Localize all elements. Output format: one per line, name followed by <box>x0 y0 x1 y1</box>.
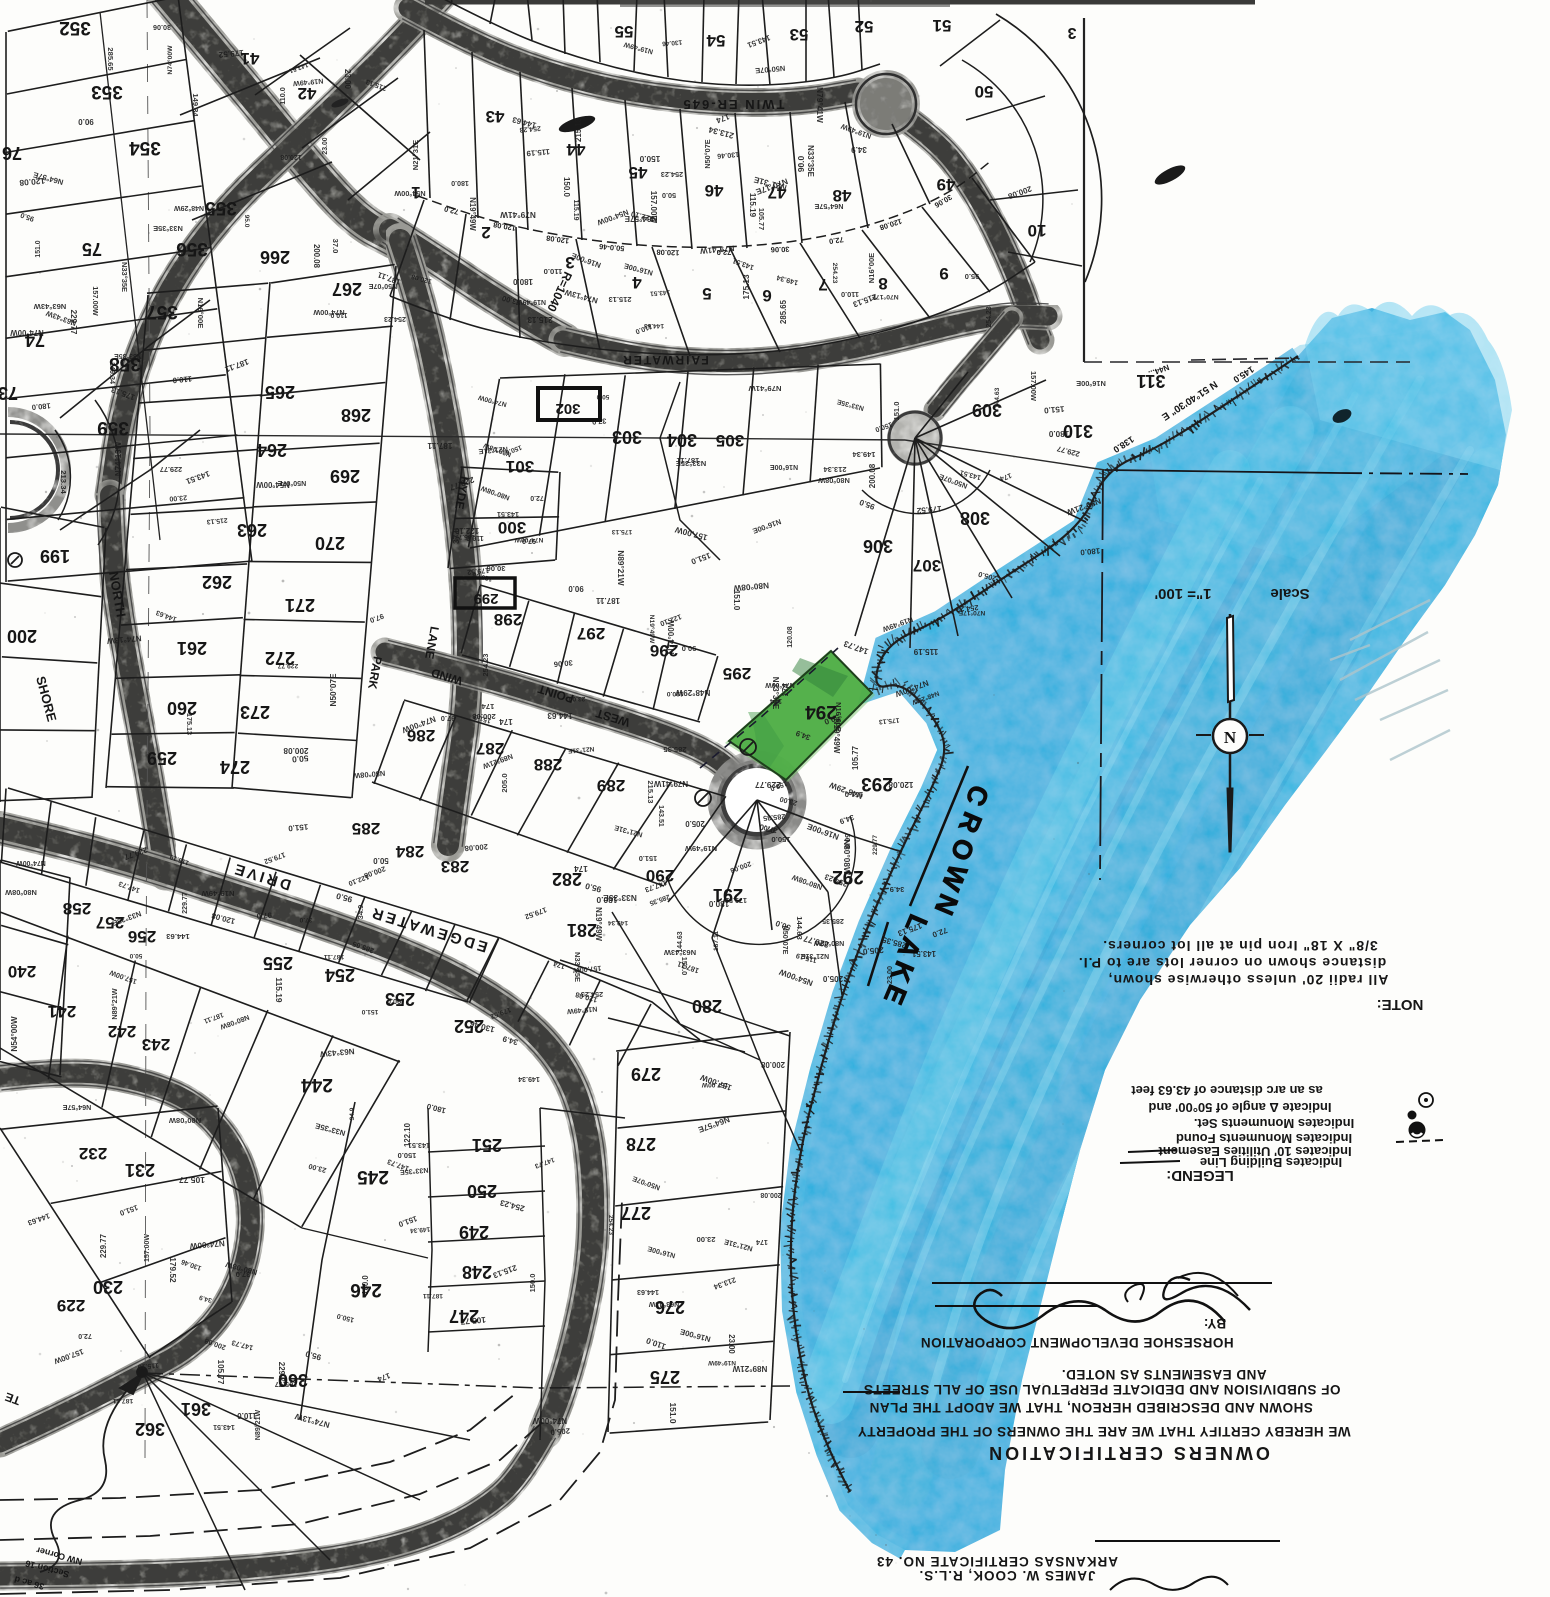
svg-text:N: N <box>1224 728 1237 747</box>
svg-text:N19°49W: N19°49W <box>684 844 717 853</box>
svg-text:53: 53 <box>790 25 809 44</box>
svg-text:362: 362 <box>135 1419 165 1439</box>
svg-text:1"= 100': 1"= 100' <box>1155 585 1212 602</box>
svg-text:149.34: 149.34 <box>608 919 629 926</box>
svg-text:306: 306 <box>863 536 893 556</box>
svg-text:157.00W: 157.00W <box>701 1081 728 1088</box>
svg-text:297: 297 <box>577 624 605 643</box>
svg-text:248: 248 <box>462 1262 492 1282</box>
svg-text:254.23: 254.23 <box>831 263 838 284</box>
svg-text:259: 259 <box>147 748 177 768</box>
svg-text:30.06: 30.06 <box>771 245 790 255</box>
svg-text:285.35: 285.35 <box>822 917 844 925</box>
svg-text:23.00: 23.00 <box>169 493 187 503</box>
svg-text:30.06: 30.06 <box>153 23 171 32</box>
svg-text:76: 76 <box>2 143 22 163</box>
svg-text:74: 74 <box>25 330 45 350</box>
svg-text:281: 281 <box>567 920 597 940</box>
svg-text:149.34: 149.34 <box>191 93 200 117</box>
svg-text:199: 199 <box>40 546 70 566</box>
svg-text:242: 242 <box>108 1022 136 1041</box>
svg-text:144.63: 144.63 <box>166 932 190 941</box>
svg-text:N54°00W: N54°00W <box>10 1016 19 1051</box>
svg-text:N54°00W: N54°00W <box>256 480 290 489</box>
svg-text:34.9: 34.9 <box>356 905 365 920</box>
svg-text:357: 357 <box>146 301 178 322</box>
svg-text:N16°00E: N16°00E <box>196 298 205 329</box>
svg-text:254.23: 254.23 <box>481 654 490 677</box>
svg-text:175.13: 175.13 <box>742 274 751 299</box>
svg-text:N74°00W: N74°00W <box>765 681 795 689</box>
svg-text:N64°57E: N64°57E <box>624 214 657 223</box>
svg-text:73: 73 <box>0 383 18 403</box>
svg-text:284: 284 <box>395 842 424 861</box>
svg-text:110.0: 110.0 <box>330 311 347 318</box>
svg-text:97.0: 97.0 <box>441 714 455 723</box>
svg-text:271: 271 <box>285 595 315 615</box>
svg-text:240: 240 <box>8 962 36 981</box>
svg-text:50.0: 50.0 <box>843 834 852 849</box>
svg-text:277: 277 <box>621 1203 651 1223</box>
svg-text:8: 8 <box>878 274 887 293</box>
svg-text:253: 253 <box>385 989 415 1009</box>
svg-text:360: 360 <box>278 1370 308 1390</box>
svg-text:72.0: 72.0 <box>530 494 544 501</box>
svg-text:361: 361 <box>181 1399 211 1419</box>
svg-text:299: 299 <box>473 590 498 607</box>
svg-text:200.08: 200.08 <box>868 463 877 488</box>
svg-text:213.34: 213.34 <box>823 465 847 474</box>
svg-text:N19°49W: N19°49W <box>468 197 477 231</box>
svg-text:266: 266 <box>260 247 290 267</box>
svg-text:247: 247 <box>449 1306 479 1326</box>
svg-text:10: 10 <box>1028 221 1047 240</box>
svg-text:269: 269 <box>330 466 360 486</box>
svg-text:229.77: 229.77 <box>99 1234 108 1258</box>
svg-text:OWNERS CERTIFICATION: OWNERS CERTIFICATION <box>986 1443 1270 1463</box>
svg-text:174: 174 <box>499 717 513 726</box>
svg-text:303: 303 <box>612 427 642 447</box>
svg-text:115.19: 115.19 <box>274 977 284 1002</box>
svg-text:180.0: 180.0 <box>512 277 533 286</box>
svg-text:252: 252 <box>454 1016 484 1036</box>
svg-text:296: 296 <box>650 641 678 660</box>
svg-text:Indicates Monuments Set.: Indicates Monuments Set. <box>1194 1116 1354 1131</box>
svg-text:288: 288 <box>534 755 562 774</box>
svg-text:150.0: 150.0 <box>562 177 571 198</box>
svg-text:30.06: 30.06 <box>553 658 573 669</box>
svg-text:174: 174 <box>756 1238 768 1246</box>
svg-text:N63°43W: N63°43W <box>33 302 66 311</box>
svg-text:90.0: 90.0 <box>796 156 806 173</box>
svg-text:295: 295 <box>723 664 751 683</box>
svg-text:215.13: 215.13 <box>609 295 632 304</box>
svg-text:151.0: 151.0 <box>35 240 42 257</box>
svg-text:110.0: 110.0 <box>466 534 484 543</box>
svg-text:AND EASEMENTS AS NOTED.: AND EASEMENTS AS NOTED. <box>1061 1367 1266 1382</box>
svg-text:205.0: 205.0 <box>500 773 509 792</box>
svg-text:180.0: 180.0 <box>1079 546 1100 557</box>
svg-text:N33°35E: N33°35E <box>120 262 129 292</box>
svg-text:310: 310 <box>1063 421 1093 441</box>
svg-text:OF SUBDIVISION AND DEDICATE PE: OF SUBDIVISION AND DEDICATE PERPETUAL US… <box>863 1382 1340 1397</box>
svg-text:N33°35E: N33°35E <box>603 893 637 903</box>
svg-text:All radii 20' unless otherwise: All radii 20' unless otherwise shown, <box>1108 972 1389 988</box>
svg-text:300: 300 <box>498 518 526 537</box>
svg-text:110.0: 110.0 <box>666 690 683 697</box>
svg-text:46: 46 <box>705 181 724 200</box>
svg-text:230: 230 <box>93 1277 123 1297</box>
svg-text:150.0: 150.0 <box>398 1151 417 1160</box>
svg-text:34.9: 34.9 <box>349 1107 356 1120</box>
svg-text:N74°13W: N74°13W <box>114 441 123 476</box>
svg-text:291: 291 <box>713 885 743 905</box>
svg-text:120.08: 120.08 <box>787 626 794 648</box>
svg-text:254.23: 254.23 <box>607 1215 614 1235</box>
svg-text:143.51: 143.51 <box>213 1423 235 1431</box>
svg-text:N50°07E: N50°07E <box>703 139 712 168</box>
svg-text:N63°43W: N63°43W <box>663 948 696 957</box>
svg-text:N64°57E: N64°57E <box>63 1103 92 1111</box>
svg-text:245: 245 <box>357 1166 389 1187</box>
svg-text:254: 254 <box>325 965 355 985</box>
svg-text:44: 44 <box>566 140 585 159</box>
svg-text:179.52: 179.52 <box>168 1257 178 1283</box>
svg-text:268: 268 <box>341 405 371 425</box>
svg-text:50: 50 <box>975 82 994 101</box>
svg-text:90.0: 90.0 <box>78 117 94 126</box>
svg-text:105.77: 105.77 <box>851 746 860 770</box>
svg-text:N33°35E: N33°35E <box>676 459 706 468</box>
svg-text:N21°31E: N21°31E <box>801 952 829 960</box>
svg-text:200: 200 <box>7 626 37 646</box>
svg-text:3/8" X 18" Iron pin at all lot: 3/8" X 18" Iron pin at all lot corners. <box>1102 938 1378 954</box>
svg-text:180.0: 180.0 <box>31 401 51 412</box>
svg-text:3: 3 <box>565 253 574 272</box>
svg-text:distance shown on corner lots: distance shown on corner lots are to P.I… <box>1078 955 1386 971</box>
svg-text:Indicate Δ angle of 50°00' and: Indicate Δ angle of 50°00' and <box>1148 1100 1331 1115</box>
svg-text:174: 174 <box>481 702 495 711</box>
svg-text:97.0: 97.0 <box>522 537 536 545</box>
svg-text:50.0: 50.0 <box>373 856 389 865</box>
svg-text:200.08: 200.08 <box>312 244 321 269</box>
svg-text:232: 232 <box>79 1144 107 1163</box>
svg-text:130.46: 130.46 <box>717 150 740 161</box>
svg-text:N89°21W: N89°21W <box>110 988 119 1019</box>
svg-text:N79°41W: N79°41W <box>653 779 688 788</box>
svg-text:264: 264 <box>257 440 287 460</box>
svg-text:LEGEND:: LEGEND: <box>1166 1167 1234 1184</box>
svg-text:149.34: 149.34 <box>518 1075 540 1083</box>
svg-text:175.13: 175.13 <box>611 528 632 535</box>
svg-text:286: 286 <box>407 726 435 745</box>
svg-text:151.0: 151.0 <box>639 854 658 863</box>
svg-text:151.0: 151.0 <box>361 1008 378 1015</box>
svg-text:2: 2 <box>481 223 490 242</box>
svg-text:45: 45 <box>629 163 648 182</box>
svg-text:257: 257 <box>96 913 124 932</box>
svg-text:294: 294 <box>805 701 837 722</box>
svg-text:N16°00E: N16°00E <box>1076 379 1106 388</box>
svg-text:150.0: 150.0 <box>528 1274 537 1293</box>
svg-text:23.00: 23.00 <box>727 1334 736 1354</box>
svg-text:179.52: 179.52 <box>467 566 490 577</box>
svg-text:37.0: 37.0 <box>331 239 340 254</box>
svg-text:N48°29W: N48°29W <box>174 204 204 212</box>
svg-text:282: 282 <box>552 869 582 889</box>
svg-text:50.0: 50.0 <box>291 753 309 764</box>
svg-text:275: 275 <box>650 1367 680 1387</box>
svg-text:187.11: 187.11 <box>113 1397 134 1404</box>
svg-text:47: 47 <box>768 183 787 202</box>
svg-text:N74°00W: N74°00W <box>166 45 174 75</box>
svg-text:229.77: 229.77 <box>160 465 182 474</box>
svg-text:213.34: 213.34 <box>59 470 68 494</box>
svg-text:55: 55 <box>615 22 634 41</box>
svg-text:N21°31E: N21°31E <box>411 140 420 170</box>
svg-text:N79°41W: N79°41W <box>500 210 536 220</box>
svg-text:143.51: 143.51 <box>657 805 665 827</box>
svg-text:N80°08W: N80°08W <box>168 1116 201 1125</box>
svg-text:42: 42 <box>298 84 317 103</box>
svg-text:144.63: 144.63 <box>795 916 804 940</box>
svg-text:120.08: 120.08 <box>656 248 679 258</box>
svg-text:265: 265 <box>265 382 295 402</box>
svg-text:N16°00E: N16°00E <box>867 253 876 283</box>
svg-text:N50°07E: N50°07E <box>329 673 338 706</box>
svg-text:215.13: 215.13 <box>574 117 583 142</box>
svg-text:72.0: 72.0 <box>78 1332 92 1339</box>
svg-text:256: 256 <box>128 927 156 946</box>
svg-text:23.00: 23.00 <box>322 137 329 154</box>
svg-text:229: 229 <box>57 1296 85 1315</box>
svg-text:305: 305 <box>716 431 744 450</box>
svg-text:WE HEREBY CERTIFY THAT WE ARE: WE HEREBY CERTIFY THAT WE ARE THE OWNERS… <box>857 1424 1350 1439</box>
svg-text:205.0: 205.0 <box>822 974 843 983</box>
svg-text:N19°49W: N19°49W <box>832 719 841 754</box>
svg-text:N33°35E: N33°35E <box>153 224 183 233</box>
svg-text:6: 6 <box>762 286 771 305</box>
svg-text:356: 356 <box>176 238 208 259</box>
svg-text:110.0: 110.0 <box>172 374 193 385</box>
svg-text:279: 279 <box>631 1064 661 1084</box>
svg-text:353: 353 <box>91 81 123 102</box>
svg-text:151.0: 151.0 <box>892 401 901 420</box>
svg-text:N19°49W: N19°49W <box>201 889 235 898</box>
svg-text:95.0: 95.0 <box>243 215 250 228</box>
svg-text:FAIRWATER: FAIRWATER <box>621 353 709 367</box>
svg-text:285: 285 <box>352 819 380 838</box>
svg-text:285.35: 285.35 <box>663 745 687 754</box>
svg-text:144.63: 144.63 <box>547 711 573 721</box>
svg-text:231: 231 <box>125 1160 155 1180</box>
svg-text:354: 354 <box>129 137 161 158</box>
svg-text:229.77: 229.77 <box>755 780 781 790</box>
svg-text:5: 5 <box>702 284 711 303</box>
svg-text:1: 1 <box>411 183 420 202</box>
svg-text:260: 260 <box>167 698 197 718</box>
svg-text:95.0: 95.0 <box>965 272 980 281</box>
svg-text:N80°08W: N80°08W <box>818 476 850 485</box>
svg-text:205.0: 205.0 <box>862 945 884 957</box>
svg-text:N79°41W: N79°41W <box>748 384 782 393</box>
svg-text:144.63: 144.63 <box>637 1288 659 1297</box>
svg-text:249: 249 <box>459 1222 489 1242</box>
svg-text:43: 43 <box>486 107 505 126</box>
svg-text:229.77: 229.77 <box>182 892 189 914</box>
svg-text:309: 309 <box>972 400 1002 420</box>
svg-text:105.77: 105.77 <box>757 208 766 230</box>
svg-text:151.0: 151.0 <box>1043 404 1065 415</box>
svg-text:292: 292 <box>832 866 864 887</box>
svg-text:N79°41W: N79°41W <box>815 87 825 123</box>
svg-text:290: 290 <box>646 866 674 885</box>
svg-text:Indicates Monuments Found: Indicates Monuments Found <box>1176 1131 1352 1146</box>
svg-text:229.77: 229.77 <box>69 310 78 335</box>
svg-text:246: 246 <box>350 1279 382 1300</box>
svg-text:187.11: 187.11 <box>423 1292 443 1299</box>
svg-text:90.0: 90.0 <box>568 584 584 593</box>
svg-text:N16°00E: N16°00E <box>770 463 798 471</box>
svg-text:187.11: 187.11 <box>324 953 345 960</box>
svg-text:157.00W: 157.00W <box>144 1234 151 1262</box>
svg-text:258: 258 <box>63 899 91 918</box>
svg-text:229.77: 229.77 <box>872 835 879 855</box>
svg-text:205.0: 205.0 <box>685 819 705 828</box>
svg-text:TWIN ER-645: TWIN ER-645 <box>682 97 785 112</box>
svg-text:41: 41 <box>241 49 260 68</box>
svg-text:37.0: 37.0 <box>299 916 312 923</box>
svg-text:215.13: 215.13 <box>646 781 655 804</box>
svg-text:34.9: 34.9 <box>890 885 905 894</box>
svg-text:273: 273 <box>240 702 270 722</box>
svg-text:302: 302 <box>555 400 580 417</box>
svg-text:115.19: 115.19 <box>572 199 579 220</box>
svg-text:N74°00W: N74°00W <box>532 1416 567 1425</box>
svg-text:105.77: 105.77 <box>179 1175 205 1185</box>
svg-text:122.10: 122.10 <box>403 1122 412 1147</box>
svg-text:304: 304 <box>667 430 697 450</box>
svg-text:359: 359 <box>97 417 129 438</box>
svg-text:3: 3 <box>1067 24 1076 41</box>
svg-text:200.08: 200.08 <box>472 712 496 721</box>
svg-text:254.23: 254.23 <box>384 315 406 324</box>
svg-text:151.0: 151.0 <box>668 1403 678 1424</box>
svg-text:120.08: 120.08 <box>280 153 302 160</box>
svg-text:250: 250 <box>467 1181 497 1201</box>
svg-text:270: 270 <box>315 533 345 553</box>
svg-text:JAMES W. COOK, R.L.S.: JAMES W. COOK, R.L.S. <box>918 1568 1095 1583</box>
svg-text:23.00: 23.00 <box>343 69 352 90</box>
svg-text:N74°00W: N74°00W <box>16 859 46 867</box>
svg-text:285.65: 285.65 <box>106 47 115 71</box>
svg-text:180.0: 180.0 <box>451 179 469 187</box>
svg-text:307: 307 <box>913 556 941 575</box>
svg-text:287: 287 <box>476 739 504 758</box>
svg-text:174: 174 <box>769 697 782 706</box>
svg-text:143.51: 143.51 <box>497 510 519 519</box>
svg-text:97.0: 97.0 <box>256 910 273 920</box>
svg-text:4: 4 <box>632 273 642 292</box>
svg-text:115.19: 115.19 <box>748 193 757 218</box>
svg-text:200.08: 200.08 <box>760 1060 785 1069</box>
svg-text:255: 255 <box>263 953 293 973</box>
svg-text:Scale: Scale <box>1270 585 1309 602</box>
svg-text:49: 49 <box>937 175 956 194</box>
svg-text:200.08: 200.08 <box>760 1191 781 1198</box>
svg-text:151.0: 151.0 <box>732 590 742 611</box>
svg-text:298: 298 <box>494 610 522 629</box>
svg-text:262: 262 <box>202 572 232 592</box>
svg-text:274: 274 <box>220 757 250 777</box>
svg-text:215.13: 215.13 <box>527 315 553 325</box>
svg-text:23.00: 23.00 <box>696 1235 715 1244</box>
svg-text:105.77: 105.77 <box>216 1360 225 1385</box>
svg-text:SHOWN AND DESCRIBED HEREON, TH: SHOWN AND DESCRIBED HEREON, THAT WE ADOP… <box>869 1400 1313 1415</box>
svg-text:N80°08W: N80°08W <box>5 888 37 897</box>
svg-text:283: 283 <box>441 857 469 876</box>
svg-text:352: 352 <box>59 17 91 38</box>
svg-text:48: 48 <box>833 186 852 205</box>
svg-text:254.23: 254.23 <box>661 170 683 179</box>
svg-text:251: 251 <box>472 1135 502 1155</box>
svg-text:37.0: 37.0 <box>452 528 461 544</box>
svg-text:280: 280 <box>692 996 722 1016</box>
svg-text:187.11: 187.11 <box>595 596 620 605</box>
svg-text:157.00W: 157.00W <box>1029 371 1038 402</box>
svg-text:110.0: 110.0 <box>544 267 563 276</box>
svg-text:115.19: 115.19 <box>913 647 938 656</box>
svg-text:149.34: 149.34 <box>852 450 876 459</box>
svg-text:187.11: 187.11 <box>713 931 720 951</box>
svg-text:261: 261 <box>177 638 207 658</box>
svg-text:N89°21W: N89°21W <box>616 550 625 585</box>
svg-text:301: 301 <box>506 457 534 476</box>
svg-text:151.0: 151.0 <box>287 822 308 833</box>
svg-text:276: 276 <box>655 1297 685 1317</box>
svg-text:90.0: 90.0 <box>682 644 697 653</box>
svg-text:150.0: 150.0 <box>639 154 660 164</box>
svg-text:187.11: 187.11 <box>427 441 452 451</box>
svg-text:N33°35E: N33°35E <box>806 145 815 177</box>
svg-text:HORSESHOE DEVELOPMENT CORPOR: HORSESHOE DEVELOPMENT CORPORATION <box>920 1335 1233 1350</box>
svg-text:355: 355 <box>205 197 237 218</box>
svg-text:205.0: 205.0 <box>549 1426 570 1437</box>
svg-text:50.0: 50.0 <box>662 191 676 200</box>
svg-text:N89°21W: N89°21W <box>732 1364 767 1373</box>
svg-text:272: 272 <box>265 648 295 668</box>
svg-text:263: 263 <box>237 520 267 540</box>
svg-text:N50°07E: N50°07E <box>781 926 790 955</box>
svg-text:244: 244 <box>301 1074 333 1095</box>
svg-text:ARKANSAS CERTIFICATE NO. 43: ARKANSAS CERTIFICATE NO. 43 <box>876 1554 1118 1569</box>
svg-text:as an arc distance of 43.63 fe: as an arc distance of 43.63 feet <box>1131 1083 1323 1098</box>
svg-text:293: 293 <box>861 773 893 794</box>
svg-text:N19°49W: N19°49W <box>707 1359 736 1367</box>
svg-text:110.0: 110.0 <box>278 87 287 105</box>
svg-text:110.0: 110.0 <box>841 290 859 299</box>
svg-text:285.65: 285.65 <box>779 299 788 324</box>
svg-text:9: 9 <box>939 264 948 283</box>
svg-text:157.00W: 157.00W <box>91 286 100 316</box>
svg-text:241: 241 <box>48 1002 76 1021</box>
svg-text:243: 243 <box>142 1035 170 1054</box>
svg-text:308: 308 <box>960 508 990 528</box>
svg-text:51: 51 <box>933 16 952 35</box>
svg-text:254.23: 254.23 <box>986 306 993 327</box>
svg-text:NOTE:: NOTE: <box>1377 996 1424 1013</box>
svg-text:34.9: 34.9 <box>851 145 867 154</box>
